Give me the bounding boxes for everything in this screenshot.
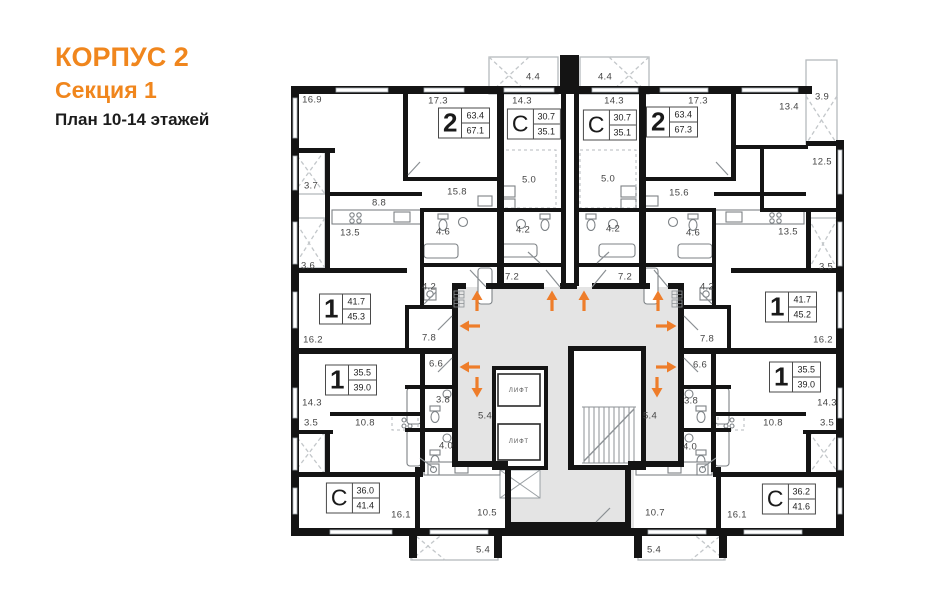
apartment-area-living: 30.7 bbox=[534, 110, 561, 125]
room-area-label: 3.8 bbox=[436, 395, 450, 406]
apartment-type: 1 bbox=[766, 293, 788, 322]
apartment-area-living: 63.4 bbox=[462, 109, 489, 124]
room-area-label: 15.6 bbox=[669, 188, 689, 199]
room-area-label: 15.8 bbox=[447, 187, 467, 198]
entry-arrow-icon bbox=[646, 289, 670, 313]
room-area-label: 4.2 bbox=[516, 225, 530, 236]
room-area-label: 8.8 bbox=[372, 198, 386, 209]
entry-arrow-icon bbox=[645, 375, 669, 399]
room-area-label: 16.2 bbox=[813, 335, 833, 346]
apartment-area-total: 67.3 bbox=[670, 123, 697, 137]
room-area-label: 3.5 bbox=[304, 418, 318, 429]
room-area-label: 4.2 bbox=[700, 282, 714, 293]
room-area-label: 16.2 bbox=[303, 335, 323, 346]
room-area-label: 7.2 bbox=[505, 272, 519, 283]
entry-arrow-icon bbox=[465, 289, 489, 313]
apartment-type: С bbox=[763, 485, 788, 514]
room-area-label: 7.2 bbox=[618, 272, 632, 283]
room-area-label: 7.8 bbox=[700, 334, 714, 345]
room-area-label: 4.2 bbox=[422, 282, 436, 293]
apartment-badge: 135.539.0 bbox=[769, 362, 821, 393]
lift-label: ЛИФТ bbox=[509, 439, 529, 445]
room-area-label: 6.6 bbox=[693, 360, 707, 371]
apartment-badge: С36.041.4 bbox=[326, 483, 380, 514]
room-area-label: 5.4 bbox=[643, 411, 657, 422]
apartment-area-total: 35.1 bbox=[534, 125, 561, 139]
apartment-area-total: 67.1 bbox=[462, 124, 489, 138]
apartment-type: С bbox=[584, 111, 609, 140]
room-area-label: 14.3 bbox=[604, 96, 624, 107]
room-area-label: 10.8 bbox=[355, 418, 375, 429]
apartment-area-living: 36.0 bbox=[353, 484, 380, 499]
room-area-label: 17.3 bbox=[428, 96, 448, 107]
room-area-label: 4.6 bbox=[436, 227, 450, 238]
apartment-type: 2 bbox=[439, 109, 461, 138]
apartment-area-living: 41.7 bbox=[789, 293, 816, 308]
lift-label: ЛИФТ bbox=[509, 388, 529, 394]
apartment-area-total: 39.0 bbox=[349, 381, 376, 395]
entry-arrow-icon bbox=[654, 314, 678, 338]
room-area-label: 3.7 bbox=[304, 181, 318, 192]
apartment-badge: 263.467.3 bbox=[646, 107, 698, 138]
apartment-area-living: 41.7 bbox=[343, 295, 370, 310]
apartment-area-total: 45.2 bbox=[789, 308, 816, 322]
apartment-type: 2 bbox=[647, 108, 669, 137]
room-area-label: 3.5 bbox=[819, 262, 833, 273]
apartment-badge: 141.745.2 bbox=[765, 292, 817, 323]
entry-arrow-icon bbox=[540, 289, 564, 313]
apartment-area-total: 41.6 bbox=[789, 500, 816, 514]
apartment-area-living: 35.5 bbox=[349, 366, 376, 381]
room-area-label: 3.8 bbox=[684, 396, 698, 407]
room-area-label: 5.0 bbox=[601, 174, 615, 185]
apartment-area-living: 63.4 bbox=[670, 108, 697, 123]
room-area-label: 12.5 bbox=[812, 157, 832, 168]
room-area-label: 14.3 bbox=[817, 398, 837, 409]
room-area-label: 7.8 bbox=[422, 333, 436, 344]
room-area-label: 4.6 bbox=[686, 228, 700, 239]
room-area-label: 3.9 bbox=[815, 92, 829, 103]
room-area-label: 13.5 bbox=[778, 227, 798, 238]
apartment-badge: 135.539.0 bbox=[325, 365, 377, 396]
room-area-label: 10.5 bbox=[477, 508, 497, 519]
apartment-type: 1 bbox=[770, 363, 792, 392]
room-area-label: 6.6 bbox=[429, 359, 443, 370]
room-area-label: 14.3 bbox=[512, 96, 532, 107]
room-area-label: 5.4 bbox=[478, 411, 492, 422]
room-area-label: 4.0 bbox=[683, 442, 697, 453]
apartment-badge: 263.467.1 bbox=[438, 108, 490, 139]
apartment-type: С bbox=[508, 110, 533, 139]
room-area-label: 3.6 bbox=[301, 261, 315, 272]
room-area-label: 4.4 bbox=[526, 72, 540, 83]
room-area-label: 3.5 bbox=[820, 418, 834, 429]
apartment-badge: С36.241.6 bbox=[762, 484, 816, 515]
entry-arrow-icon bbox=[572, 289, 596, 313]
room-area-label: 16.1 bbox=[391, 510, 411, 521]
entry-arrow-icon bbox=[458, 314, 482, 338]
floor-plan-page: КОРПУС 2 Секция 1 План 10-14 этажей bbox=[0, 0, 941, 600]
room-area-label: 4.4 bbox=[598, 72, 612, 83]
room-area-label: 10.7 bbox=[645, 508, 665, 519]
apartment-badge: С30.735.1 bbox=[507, 109, 561, 140]
apartment-area-total: 41.4 bbox=[353, 499, 380, 513]
apartment-type: С bbox=[327, 484, 352, 513]
room-area-label: 5.4 bbox=[647, 545, 661, 556]
room-area-label: 17.3 bbox=[688, 96, 708, 107]
room-area-label: 5.0 bbox=[522, 175, 536, 186]
room-area-label: 16.9 bbox=[302, 95, 322, 106]
room-area-label: 5.4 bbox=[476, 545, 490, 556]
apartment-type: 1 bbox=[326, 366, 348, 395]
room-area-label: 13.4 bbox=[779, 102, 799, 113]
apartment-badge: С30.735.1 bbox=[583, 110, 637, 141]
room-area-label: 4.0 bbox=[439, 441, 453, 452]
apartment-area-living: 30.7 bbox=[610, 111, 637, 126]
room-area-label: 4.2 bbox=[606, 224, 620, 235]
apartment-type: 1 bbox=[320, 295, 342, 324]
apartment-area-total: 39.0 bbox=[793, 378, 820, 392]
entry-arrow-icon bbox=[465, 375, 489, 399]
room-area-label: 10.8 bbox=[763, 418, 783, 429]
apartment-badge: 141.745.3 bbox=[319, 294, 371, 325]
apartment-area-living: 36.2 bbox=[789, 485, 816, 500]
room-area-label: 14.3 bbox=[302, 398, 322, 409]
apartment-area-total: 35.1 bbox=[610, 126, 637, 140]
room-area-label: 16.1 bbox=[727, 510, 747, 521]
apartment-area-living: 35.5 bbox=[793, 363, 820, 378]
apartment-area-total: 45.3 bbox=[343, 310, 370, 324]
room-area-label: 13.5 bbox=[340, 228, 360, 239]
